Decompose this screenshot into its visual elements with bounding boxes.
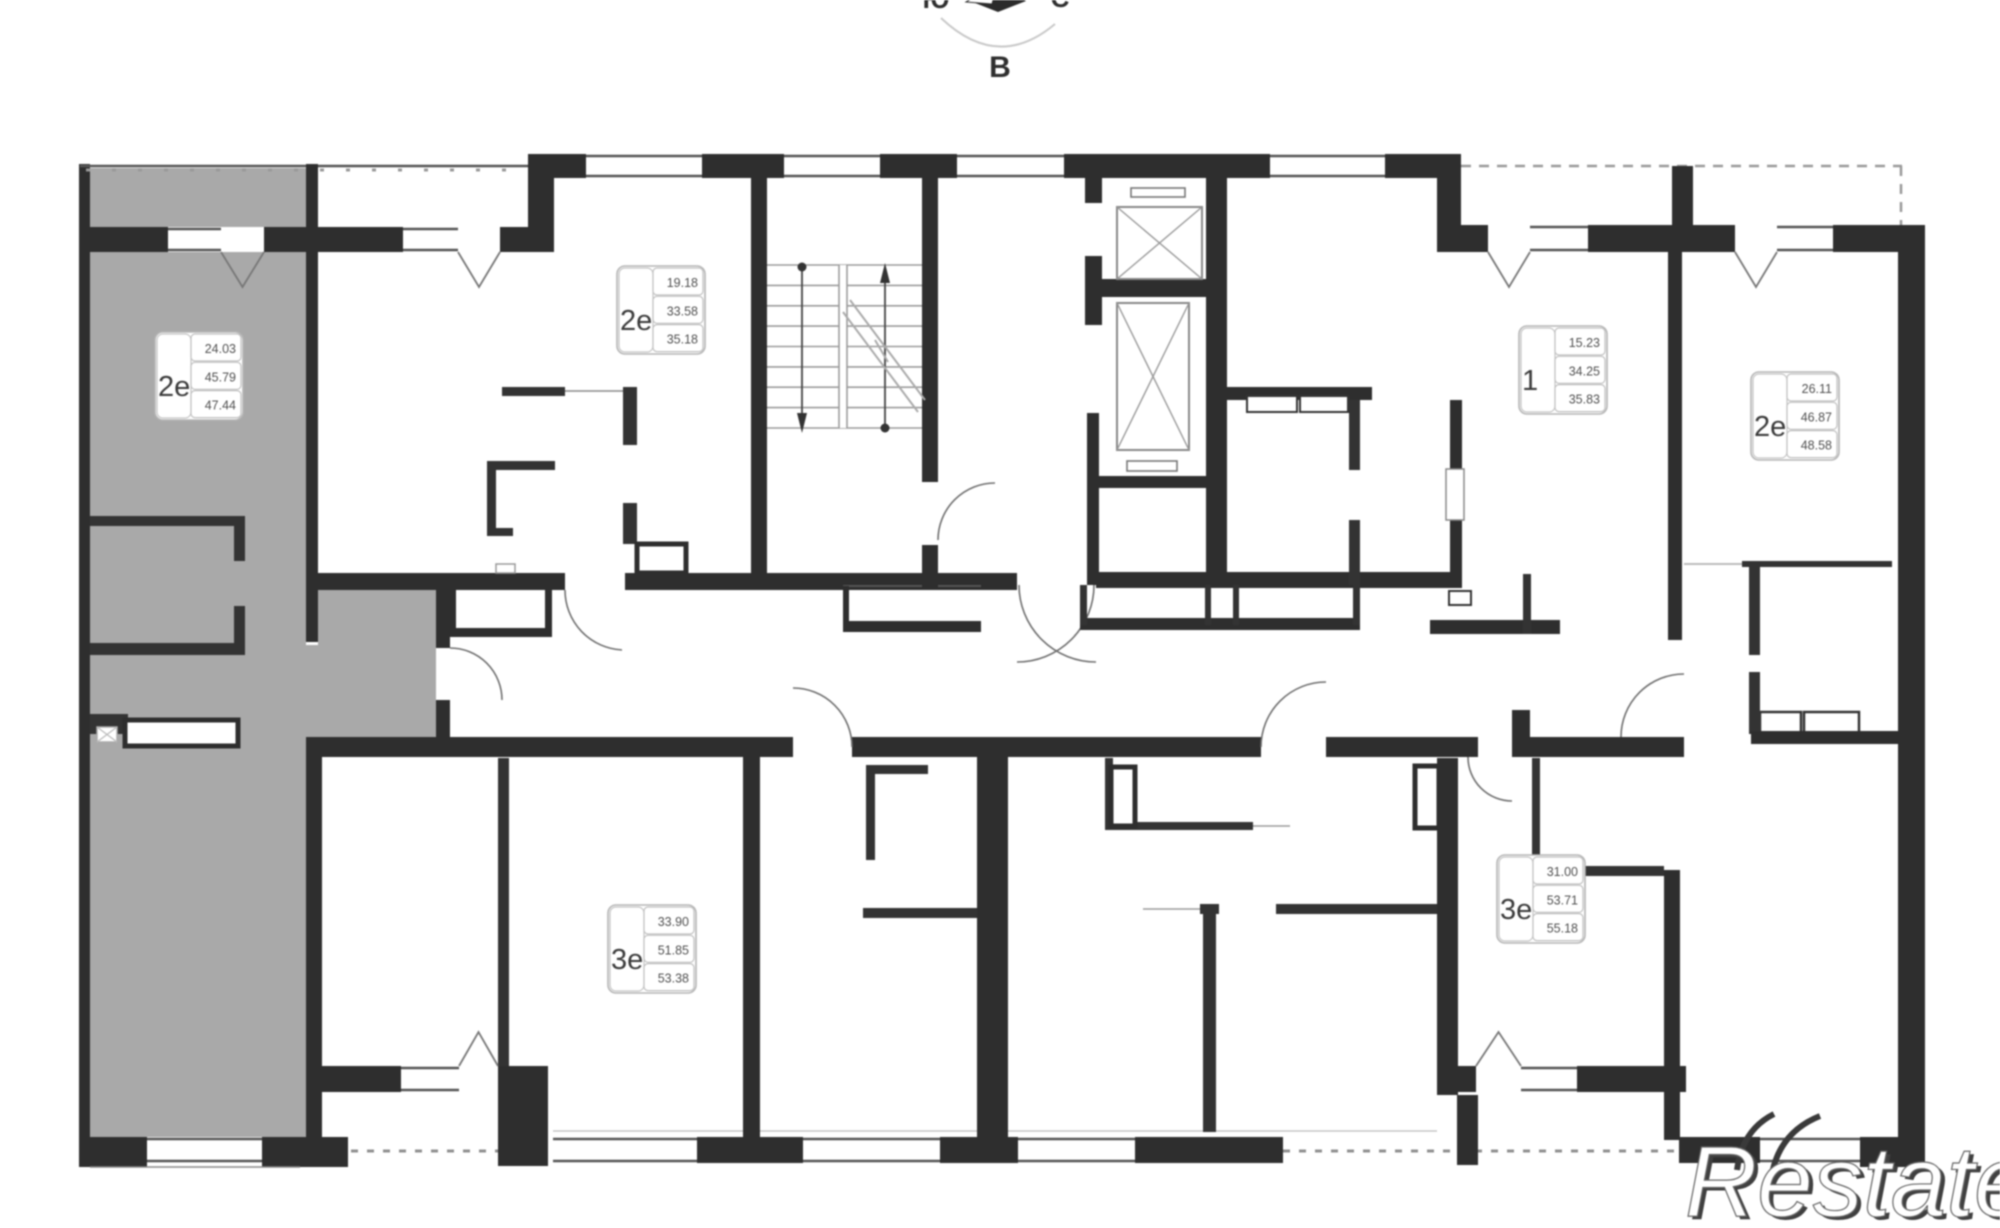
svg-text:45.79: 45.79 <box>205 370 236 384</box>
svg-text:3е: 3е <box>1500 894 1532 926</box>
svg-text:2е: 2е <box>1754 411 1786 443</box>
svg-text:33.58: 33.58 <box>667 304 698 318</box>
svg-text:35.18: 35.18 <box>667 333 698 347</box>
svg-text:2е: 2е <box>158 371 190 403</box>
svg-text:Ю: Ю <box>923 0 950 14</box>
svg-text:19.18: 19.18 <box>667 276 698 290</box>
svg-text:В: В <box>989 51 1011 84</box>
svg-text:1: 1 <box>1522 365 1538 397</box>
svg-text:34.25: 34.25 <box>1569 364 1600 378</box>
svg-text:51.85: 51.85 <box>658 943 689 957</box>
svg-text:53.38: 53.38 <box>658 972 689 986</box>
svg-text:С: С <box>1051 0 1070 13</box>
svg-text:47.44: 47.44 <box>205 399 236 413</box>
svg-text:33.90: 33.90 <box>658 915 689 929</box>
svg-text:15.23: 15.23 <box>1569 336 1600 350</box>
svg-text:3е: 3е <box>611 944 643 976</box>
svg-text:55.18: 55.18 <box>1547 922 1578 936</box>
svg-text:53.71: 53.71 <box>1547 893 1578 907</box>
svg-text:35.83: 35.83 <box>1569 393 1600 407</box>
svg-text:26.11: 26.11 <box>1802 382 1832 396</box>
svg-text:2е: 2е <box>620 305 652 337</box>
svg-text:Restate: Restate <box>1685 1126 2000 1223</box>
svg-text:48.58: 48.58 <box>1801 439 1832 453</box>
svg-text:24.03: 24.03 <box>205 342 236 356</box>
svg-text:46.87: 46.87 <box>1801 410 1832 424</box>
svg-text:31.00: 31.00 <box>1547 865 1578 879</box>
